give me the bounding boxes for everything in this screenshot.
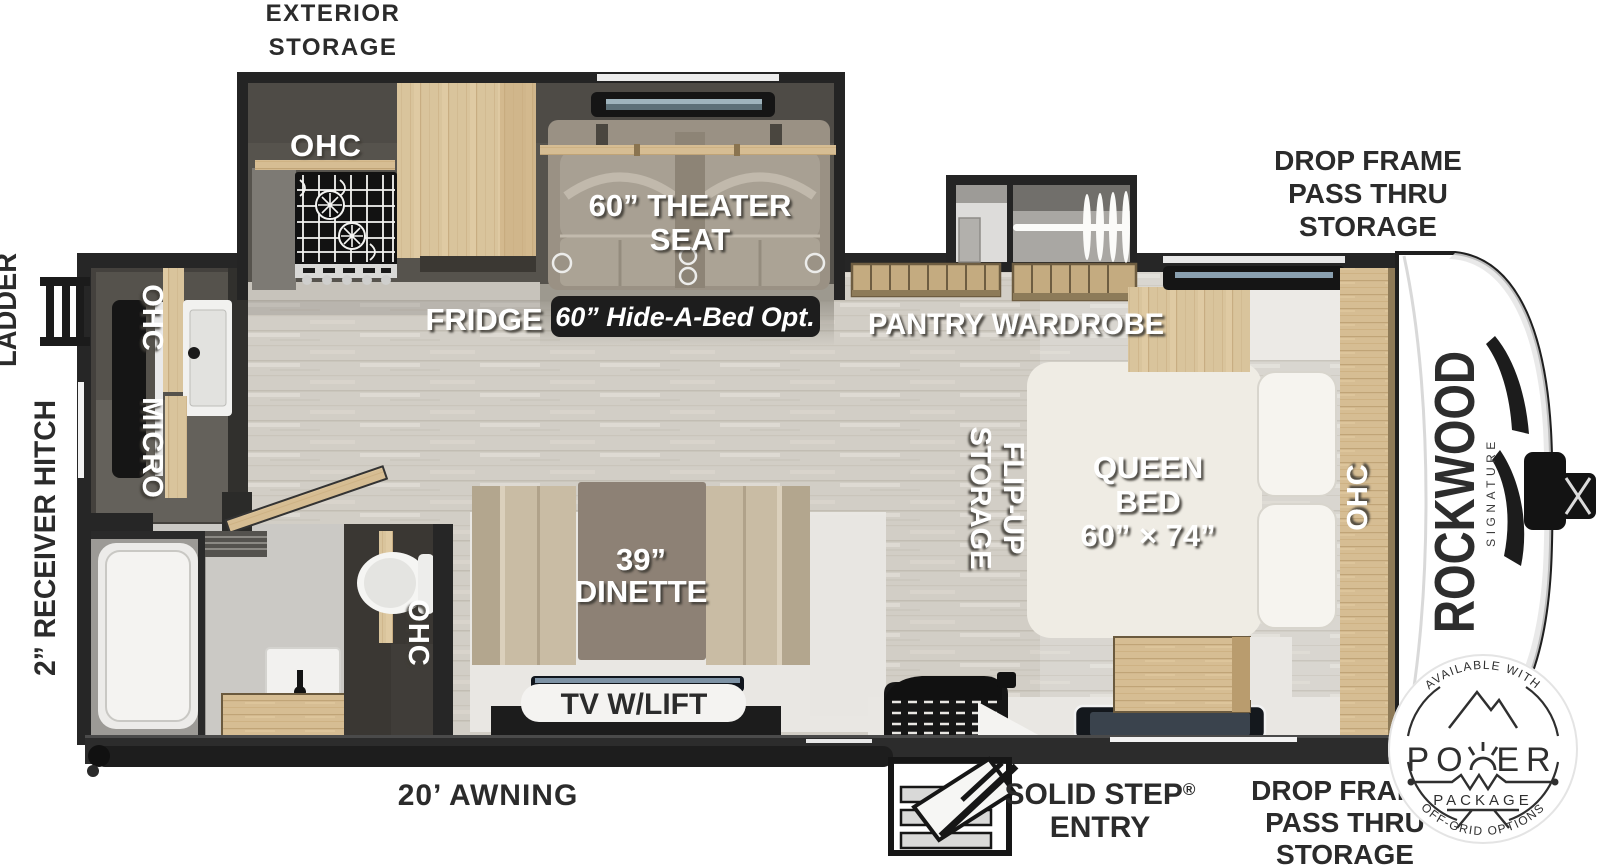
svg-text:60” THEATER: 60” THEATER: [589, 188, 792, 223]
svg-text:OHC: OHC: [402, 599, 434, 666]
svg-text:LADDER: LADDER: [0, 253, 23, 367]
svg-text:60” × 74”: 60” × 74”: [1080, 518, 1215, 553]
svg-text:PASS THRU: PASS THRU: [1288, 178, 1448, 209]
svg-text:ROCKWOOD: ROCKWOOD: [1423, 351, 1487, 633]
svg-text:STORAGE: STORAGE: [964, 427, 996, 570]
svg-text:OHC: OHC: [1342, 463, 1374, 530]
svg-text:PO: PO: [1406, 741, 1469, 779]
svg-text:TV W/LIFT: TV W/LIFT: [561, 688, 708, 721]
svg-text:QUEEN: QUEEN: [1093, 450, 1203, 485]
svg-text:FLIP-UP: FLIP-UP: [997, 442, 1029, 555]
svg-text:PASS THRU: PASS THRU: [1265, 807, 1425, 838]
svg-text:BED: BED: [1115, 484, 1180, 519]
svg-text:PANTRY WARDROBE: PANTRY WARDROBE: [868, 308, 1164, 341]
svg-text:ER: ER: [1496, 741, 1557, 779]
svg-text:20’ AWNING: 20’ AWNING: [398, 779, 579, 812]
svg-text:SIGNATURE: SIGNATURE: [1484, 437, 1498, 547]
svg-text:DINETTE: DINETTE: [575, 574, 708, 609]
svg-text:DROP FRAME: DROP FRAME: [1274, 145, 1462, 176]
svg-text:OHC: OHC: [290, 128, 362, 163]
svg-text:STORAGE: STORAGE: [1276, 839, 1414, 868]
svg-text:STORAGE: STORAGE: [1299, 211, 1437, 242]
svg-text:SEAT: SEAT: [650, 222, 730, 257]
svg-text:MICRO: MICRO: [136, 397, 168, 499]
svg-text:STORAGE: STORAGE: [269, 34, 398, 61]
svg-text:ENTRY: ENTRY: [1050, 811, 1151, 844]
svg-text:OHC: OHC: [136, 284, 168, 351]
svg-text:FRIDGE: FRIDGE: [425, 302, 542, 337]
svg-text:PACKAGE: PACKAGE: [1433, 792, 1532, 809]
svg-text:SOLID STEP®: SOLID STEP®: [1005, 778, 1196, 811]
svg-text:60” Hide-A-Bed Opt.: 60” Hide-A-Bed Opt.: [555, 302, 815, 332]
svg-text:EXTERIOR: EXTERIOR: [266, 0, 401, 27]
svg-text:39”: 39”: [616, 542, 666, 577]
svg-text:2” RECEIVER HITCH: 2” RECEIVER HITCH: [29, 400, 62, 676]
